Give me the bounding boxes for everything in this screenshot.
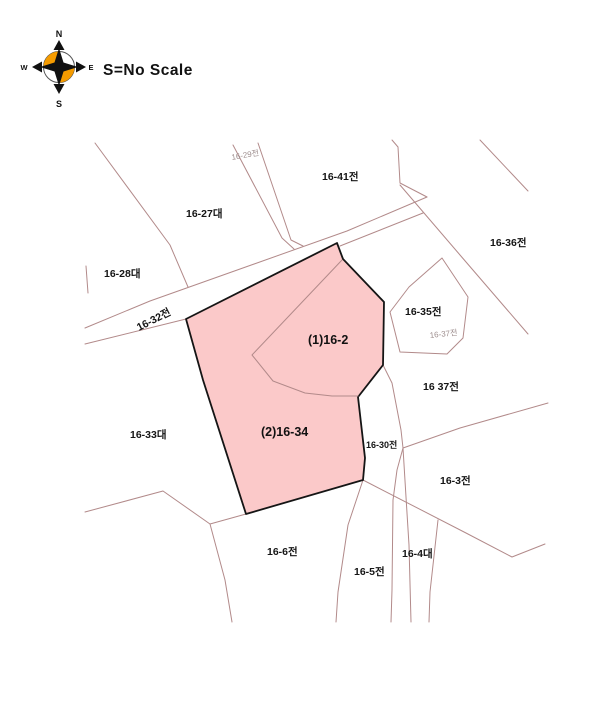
- boundary-27-28: [95, 143, 188, 287]
- parcel-label-16-5: 16-5전: [354, 565, 385, 578]
- east-arrow-icon: [76, 62, 86, 73]
- parcel-label-16-33: 16-33대: [130, 428, 167, 441]
- parcel-label-16-41: 16-41전: [322, 170, 359, 183]
- boundary-36-topright: [480, 140, 528, 191]
- scale-note: S=No Scale: [103, 62, 193, 79]
- parcel-label-16-32: 16-32전: [134, 306, 172, 334]
- boundary-bottom-left-zigzag: [85, 491, 246, 524]
- divider-5-4-right: [403, 448, 411, 622]
- north-arrow-icon: [54, 40, 65, 50]
- strip-29-right-line: [258, 143, 303, 246]
- compass-star: [40, 48, 78, 86]
- parcel-label-16-28: 16-28대: [104, 267, 141, 280]
- compass-label-south: S: [56, 99, 62, 109]
- parcel-label-16-3: 16-3전: [440, 474, 471, 487]
- strip-30-right-line: [383, 365, 403, 448]
- boundary-3-upper: [403, 403, 548, 448]
- divider-5-4-left: [391, 448, 403, 622]
- boundary-bottom-left-down: [210, 524, 232, 622]
- cadastral-map: N S W E S=No Scale 16-27대 16-28대 16-29전: [0, 0, 615, 700]
- divider-6-5: [336, 480, 363, 622]
- highlight-label-16-34: (2)16-34: [261, 425, 308, 439]
- parcel-label-16-37-small: 16-37전: [429, 327, 458, 340]
- parcel-label-16-36: 16-36전: [490, 236, 527, 249]
- parcel-label-16-30: 16-30전: [366, 439, 397, 450]
- boundary-41-right: [392, 140, 427, 197]
- compass-rose: N S W E: [20, 29, 93, 109]
- compass-label-east: E: [88, 63, 93, 72]
- highlight-parcel-polygon: [186, 243, 384, 514]
- parcel-label-16-6: 16-6전: [267, 545, 298, 558]
- boundary-bottom-diagonal: [363, 480, 545, 557]
- compass-label-north: N: [56, 29, 63, 39]
- parcel-label-16-27: 16-27대: [186, 207, 223, 220]
- south-arrow-icon: [54, 84, 65, 94]
- parcel-label-16-35: 16-35전: [405, 305, 442, 318]
- parcel-label-16-37: 16 37전: [423, 380, 459, 393]
- compass-label-west: W: [20, 63, 28, 72]
- cadastral-map-svg: N S W E S=No Scale 16-27대 16-28대 16-29전: [0, 0, 615, 700]
- road-lower-line-right: [340, 213, 423, 246]
- boundary-left-edge-tick: [86, 266, 88, 293]
- divider-4-right: [429, 520, 438, 622]
- west-arrow-icon: [32, 62, 42, 73]
- highlight-label-16-2: (1)16-2: [308, 333, 348, 347]
- parcel-label-16-4: 16-4대: [402, 547, 433, 560]
